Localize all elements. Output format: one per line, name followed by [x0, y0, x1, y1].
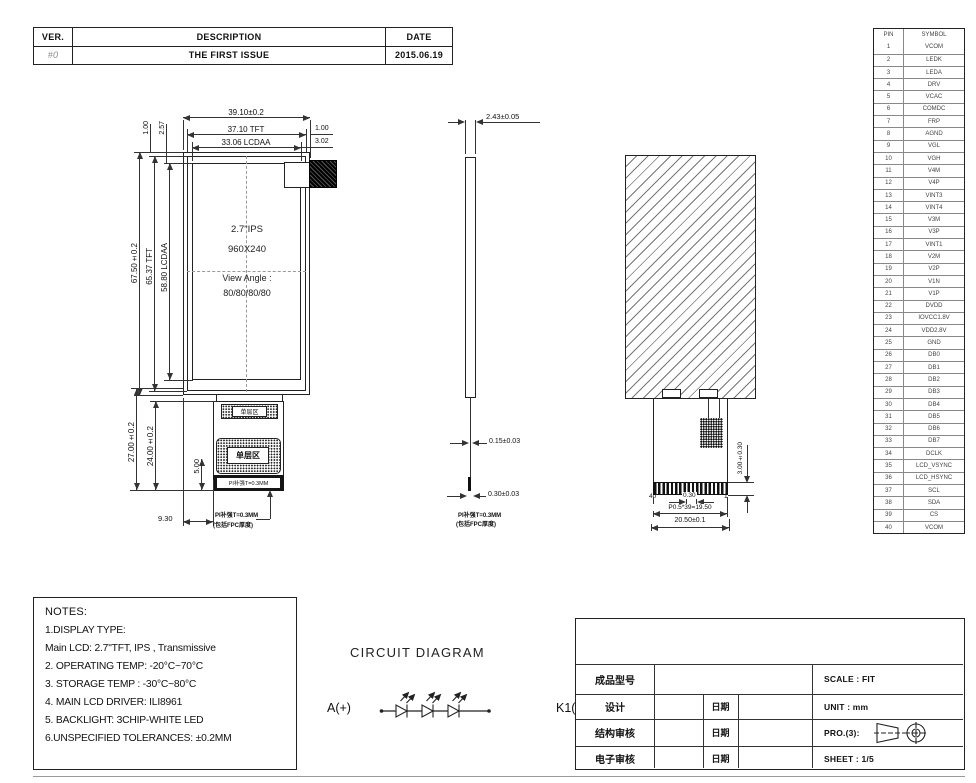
dim-arrow	[462, 440, 469, 446]
pin-number: 32	[874, 424, 904, 435]
dim-arrow	[744, 476, 750, 483]
pin-row: 12V4P	[874, 177, 964, 189]
dim-tail	[747, 445, 748, 477]
dim-stiffener-offset: 5.00	[192, 459, 201, 474]
pin-symbol: LCD_HSYNC	[904, 473, 964, 484]
dim-arrow	[472, 440, 479, 446]
pin-row: 19V2P	[874, 263, 964, 275]
dim-arrow	[458, 119, 465, 125]
pin-row: 25GND	[874, 336, 964, 348]
pin-symbol: DB0	[904, 350, 964, 361]
pin-row: 20V1N	[874, 275, 964, 287]
electronic-review-label: 电子审核	[576, 746, 654, 771]
unit-value: UNIT : mm	[812, 694, 963, 719]
revision-col-ver: VER.	[34, 28, 73, 46]
side-glass	[465, 157, 476, 398]
dim-line	[154, 156, 155, 391]
pin-row: 38SDA	[874, 496, 964, 508]
dim-line	[192, 147, 301, 148]
ext-line	[306, 129, 307, 152]
pin-symbol: FRP	[904, 116, 964, 127]
pin-row: 13VINT3	[874, 189, 964, 201]
pin-row: 35LCD_VSYNC	[874, 459, 964, 471]
ext-line	[149, 156, 187, 157]
pin-symbol: VCAC	[904, 91, 964, 102]
ext-line	[130, 490, 213, 491]
dim-tail	[311, 134, 333, 135]
dim-tail	[302, 147, 333, 148]
pin-number: 5	[874, 91, 904, 102]
dim-fpc-thickness: 0.15±0.03	[489, 438, 520, 445]
note-line: 5. BACKLIGHT: 3CHIP-WHITE LED	[45, 715, 296, 726]
dim-line	[169, 163, 170, 380]
pin-number: 10	[874, 153, 904, 164]
pin-number: 16	[874, 227, 904, 238]
pin-row: 18V2M	[874, 250, 964, 262]
pin-row: 6COMDC	[874, 103, 964, 115]
back-notch	[662, 389, 681, 398]
dim-line	[155, 401, 156, 490]
pin-number: 12	[874, 178, 904, 189]
dim-tail	[747, 501, 748, 513]
pin-col-header: PIN	[874, 29, 904, 41]
dim-width-tft: 37.10 TFT	[196, 125, 296, 134]
pin-number: 7	[874, 116, 904, 127]
pin-row: 21V1P	[874, 287, 964, 299]
pin-row: 17VINT1	[874, 238, 964, 250]
dim-line	[201, 459, 202, 490]
pin-symbol: VCOM	[904, 522, 964, 533]
dim-pin-pitch: 0.30	[682, 492, 697, 499]
ext-line	[729, 519, 730, 531]
stiffener-note-line1: PI补强T=0.3MM	[215, 510, 258, 519]
ext-line	[727, 497, 728, 517]
dim-tail	[704, 502, 714, 503]
dim-tail	[447, 496, 460, 497]
ext-line	[183, 120, 184, 150]
pin-number: 6	[874, 104, 904, 115]
pin-number: 17	[874, 239, 904, 250]
pin-row: 32DB6	[874, 423, 964, 435]
dim-line	[183, 521, 213, 522]
ext-line	[475, 120, 476, 154]
ext-line	[728, 482, 754, 483]
pin-row: 24VDD2.8V	[874, 324, 964, 336]
pin-number: 24	[874, 325, 904, 336]
ext-line	[301, 142, 302, 161]
backlight-fpc-pad	[309, 160, 337, 188]
pin-symbol: VINT4	[904, 202, 964, 213]
dim-fpc-height: 24.00±0.2	[146, 426, 155, 466]
product-model-label: 成品型号	[576, 664, 654, 694]
side-note-line2: (包括FPC厚度)	[456, 519, 496, 528]
page-border-bottom	[33, 776, 965, 777]
pin-number: 38	[874, 497, 904, 508]
dim-fpc-width: 20.50±0.1	[651, 517, 729, 524]
side-stiffener	[468, 477, 471, 491]
dim-tail	[669, 502, 679, 503]
pin-row: 9VGL	[874, 140, 964, 152]
pin-row: 33DB7	[874, 435, 964, 447]
pin-symbol: VDD2.8V	[904, 325, 964, 336]
pin-symbol: SDA	[904, 497, 964, 508]
datasheet-drawing-page: VER. DESCRIPTION DATE #0 THE FIRST ISSUE…	[0, 0, 976, 783]
pin-number: 1	[874, 41, 904, 53]
pin-row: 39CS	[874, 509, 964, 521]
panel-spec-text: 2.7"IPS 960X240 View Angle : 80/80/80/80	[197, 224, 297, 298]
note-line: 3. STORAGE TEMP : -30°C~80°C	[45, 679, 296, 690]
pin-symbol: DB3	[904, 387, 964, 398]
single-layer-label-main: 单层区	[227, 447, 269, 464]
pin-symbol: LCD_VSYNC	[904, 460, 964, 471]
title-block: 成品型号 SCALE : FIT 设计 日期 UNIT : mm 结构审核 日期…	[575, 618, 965, 770]
pin-row: 28DB2	[874, 373, 964, 385]
pin-symbol: DB6	[904, 424, 964, 435]
pin-row: 34DCLK	[874, 447, 964, 459]
pin-symbol: V3M	[904, 214, 964, 225]
revision-table: VER. DESCRIPTION DATE #0 THE FIRST ISSUE…	[33, 27, 453, 65]
leader-arrow	[267, 490, 273, 497]
pin-symbol: V1P	[904, 288, 964, 299]
pin-number: 33	[874, 436, 904, 447]
pin-number: 40	[874, 522, 904, 533]
pin-number: 29	[874, 387, 904, 398]
symbol-col-header: SYMBOL	[904, 29, 964, 41]
dim-pitch-total: P0.5*39=19.50	[653, 504, 727, 511]
pin-symbol: LEDK	[904, 55, 964, 66]
pin-number: 35	[874, 460, 904, 471]
pin-symbol: VCOM	[904, 41, 964, 53]
ext-line	[192, 142, 193, 161]
circuit-anode-label: A(+)	[327, 701, 351, 715]
dim-thickness: 2.43±0.05	[486, 112, 519, 121]
dim-tail	[450, 443, 462, 444]
back-hatch-area	[625, 155, 756, 399]
dim-arrow	[744, 495, 750, 502]
pin-table: PIN SYMBOL 1VCOM2LEDK3LEDA4DRV5VCAC6COMD…	[873, 28, 965, 534]
pin-row: 15V3M	[874, 213, 964, 225]
pin-number: 31	[874, 411, 904, 422]
pin-symbol: DB2	[904, 374, 964, 385]
pin-row: 23IOVCC1.8V	[874, 312, 964, 324]
note-line: 2. OPERATING TEMP: -20°C~70°C	[45, 661, 296, 672]
scale-value: SCALE : FIT	[812, 664, 963, 694]
ext-line	[131, 388, 183, 389]
pin-row: 10VGH	[874, 152, 964, 164]
dim-arrow	[473, 493, 480, 499]
dim-tail	[480, 496, 486, 497]
pin-symbol: VINT3	[904, 190, 964, 201]
pin-symbol: DB7	[904, 436, 964, 447]
back-stiffener-pad	[700, 418, 723, 448]
dim-margin-right-tft: 1.00	[315, 125, 329, 132]
pin-symbol: VINT1	[904, 239, 964, 250]
notes-lines: 1.DISPLAY TYPE:Main LCD: 2.7"TFT, IPS , …	[45, 625, 296, 744]
panel-view-angle-label: View Angle :	[197, 273, 297, 283]
dim-arrow	[460, 493, 467, 499]
dim-width-overall: 39.10±0.2	[196, 108, 296, 117]
panel-resolution: 960X240	[197, 244, 297, 255]
note-line: Main LCD: 2.7"TFT, IPS , Transmissive	[45, 643, 296, 654]
dim-width-aa: 33.06 LCDAA	[196, 138, 296, 147]
pin-number: 15	[874, 214, 904, 225]
pin-row: 3LEDA	[874, 66, 964, 78]
dim-connector-height: 3.00±0.30	[737, 442, 744, 474]
pin-number: 21	[874, 288, 904, 299]
date-label: 日期	[703, 746, 738, 771]
revision-col-date: DATE	[386, 28, 452, 46]
pin-number: 26	[874, 350, 904, 361]
pin-symbol: DB1	[904, 362, 964, 373]
pin-symbol: AGND	[904, 128, 964, 139]
dim-line	[187, 134, 306, 135]
pin-symbol: DB5	[904, 411, 964, 422]
pin-row: 29DB3	[874, 386, 964, 398]
pin-number: 22	[874, 301, 904, 312]
stiffener-bar-label: PI补强T=0.3MM	[217, 478, 280, 488]
ext-line	[310, 120, 311, 158]
side-note-line1: PI补强T=0.3MM	[458, 510, 501, 519]
pin-symbol: DRV	[904, 79, 964, 90]
pin-row: 31DB5	[874, 410, 964, 422]
fpc-trace-line	[708, 399, 709, 418]
ext-line	[149, 391, 187, 392]
pin-row: 8AGND	[874, 127, 964, 139]
pin-number: 13	[874, 190, 904, 201]
pin-number: 8	[874, 128, 904, 139]
pin-number: 25	[874, 337, 904, 348]
pin-number: 2	[874, 55, 904, 66]
pin-number: 23	[874, 313, 904, 324]
pin-symbol: V2P	[904, 264, 964, 275]
pin-number: 34	[874, 448, 904, 459]
pin-number: 19	[874, 264, 904, 275]
dim-height-tft: 65.37 TFT	[145, 248, 154, 285]
pin-symbol: VGH	[904, 153, 964, 164]
pin-number: 9	[874, 141, 904, 152]
pin-symbol: V4P	[904, 178, 964, 189]
dim-margin-top-tft: 1.00	[143, 121, 150, 135]
dim-stiffener-thickness: 0.30±0.03	[488, 491, 519, 498]
pin-row: 37SCL	[874, 484, 964, 496]
leader-line	[270, 496, 271, 519]
dim-line	[183, 117, 310, 118]
panel-size: 2.7"IPS	[197, 224, 297, 235]
back-notch	[699, 389, 718, 398]
pin-symbol: SCL	[904, 485, 964, 496]
pin-number: 36	[874, 473, 904, 484]
ext-line	[164, 380, 193, 381]
pin-table-header: PIN SYMBOL	[874, 29, 964, 41]
pin-row: 1VCOM	[874, 41, 964, 53]
date-label: 日期	[703, 719, 738, 746]
dim-margin-right-aa: 3.02	[315, 138, 329, 145]
projection-label: PRO.(3):	[824, 728, 860, 738]
ext-line	[465, 120, 466, 154]
table-line	[654, 664, 655, 768]
pin-symbol: CS	[904, 510, 964, 521]
pin-number: 11	[874, 165, 904, 176]
pin-symbol: DB4	[904, 399, 964, 410]
note-line: 1.DISPLAY TYPE:	[45, 625, 296, 636]
pin-row: 5VCAC	[874, 90, 964, 102]
ext-line	[164, 163, 192, 164]
pin-symbol: V4M	[904, 165, 964, 176]
note-line: 4. MAIN LCD DRIVER: ILI8961	[45, 697, 296, 708]
single-layer-label-top: 单层区	[232, 406, 267, 417]
pin-row: 4DRV	[874, 78, 964, 90]
pin-symbol: COMDC	[904, 104, 964, 115]
notes-title: NOTES:	[45, 606, 296, 618]
pin-number: 18	[874, 251, 904, 262]
panel-view-angle-value: 80/80/80/80	[197, 288, 297, 298]
pin-row: 11V4M	[874, 164, 964, 176]
dim-tail	[483, 122, 540, 123]
pin-row: 36LCD_HSYNC	[874, 472, 964, 484]
pin-symbol: V2M	[904, 251, 964, 262]
revision-description: THE FIRST ISSUE	[73, 47, 386, 65]
note-line: 6.UNSPECIFIED TOLERANCES: ±0.2MM	[45, 733, 296, 744]
revision-header-row: VER. DESCRIPTION DATE	[34, 28, 452, 46]
ext-line	[183, 398, 184, 526]
pin-number: 3	[874, 67, 904, 78]
sheet-value: SHEET : 1/5	[812, 746, 963, 771]
pin-row: 40VCOM	[874, 521, 964, 533]
ext-line	[187, 129, 188, 152]
ext-line	[134, 395, 183, 396]
pin-row: 2LEDK	[874, 54, 964, 66]
dim-line	[136, 388, 137, 490]
date-label: 日期	[703, 694, 738, 719]
structure-review-label: 结构审核	[576, 719, 654, 746]
stiffener-note-line2: (包括FPC厚度)	[213, 520, 253, 529]
pin-symbol: IOVCC1.8V	[904, 313, 964, 324]
pin-symbol: DVDD	[904, 301, 964, 312]
pin-row: 7FRP	[874, 115, 964, 127]
pin-symbol: DCLK	[904, 448, 964, 459]
pin-row: 27DB1	[874, 361, 964, 373]
pin-number: 27	[874, 362, 904, 373]
pin-number: 30	[874, 399, 904, 410]
dim-tail	[166, 124, 167, 163]
leader-line	[256, 519, 270, 520]
dim-arrow	[476, 119, 483, 125]
pin-row: 30DB4	[874, 398, 964, 410]
pin-symbol: V3P	[904, 227, 964, 238]
ext-line	[134, 152, 183, 153]
dim-line	[139, 152, 140, 395]
circuit-title: CIRCUIT DIAGRAM	[350, 645, 485, 660]
pin-symbol: V1N	[904, 276, 964, 287]
fpc-trace-line	[719, 399, 720, 418]
pin-number: 4	[874, 79, 904, 90]
pin-table-rows: 1VCOM2LEDK3LEDA4DRV5VCAC6COMDC7FRP8AGND9…	[874, 41, 964, 533]
pin-row: 22DVDD	[874, 300, 964, 312]
projection-cell: PRO.(3):	[812, 719, 963, 746]
pin-symbol: VGL	[904, 141, 964, 152]
pin-number: 37	[874, 485, 904, 496]
notes-box: NOTES: 1.DISPLAY TYPE:Main LCD: 2.7"TFT,…	[33, 597, 297, 770]
side-fpc-line	[470, 398, 471, 477]
revision-ver: #0	[34, 47, 73, 65]
dim-height-aa: 58.80 LCDAA	[160, 243, 169, 292]
dim-margin-top-aa: 2.57	[159, 121, 166, 135]
dim-line	[653, 513, 727, 514]
pin-number: 20	[874, 276, 904, 287]
ext-line	[728, 495, 754, 496]
revision-col-description: DESCRIPTION	[73, 28, 386, 46]
revision-date: 2015.06.19	[386, 47, 452, 65]
pin-number: 28	[874, 374, 904, 385]
pin-row: 26DB0	[874, 349, 964, 361]
dim-tail	[479, 443, 487, 444]
pin-row: 14VINT4	[874, 201, 964, 213]
dim-line	[651, 527, 729, 528]
projection-symbol	[874, 721, 932, 745]
pin-symbol: GND	[904, 337, 964, 348]
dim-height-overall: 67.50±0.2	[130, 243, 139, 283]
design-label: 设计	[576, 694, 654, 719]
dim-fpc-offset-x: 9.30	[158, 514, 173, 523]
pin-number: 39	[874, 510, 904, 521]
pin-number: 14	[874, 202, 904, 213]
dim-fpc-height-overall: 27.00±0.2	[127, 422, 136, 462]
backlight-notch	[284, 162, 311, 188]
pin-row: 16V3P	[874, 226, 964, 238]
led-circuit-graphic	[378, 690, 494, 734]
pin-symbol: LEDA	[904, 67, 964, 78]
table-line	[738, 694, 739, 768]
dim-tail	[150, 124, 151, 152]
revision-row: #0 THE FIRST ISSUE 2015.06.19	[34, 46, 452, 65]
